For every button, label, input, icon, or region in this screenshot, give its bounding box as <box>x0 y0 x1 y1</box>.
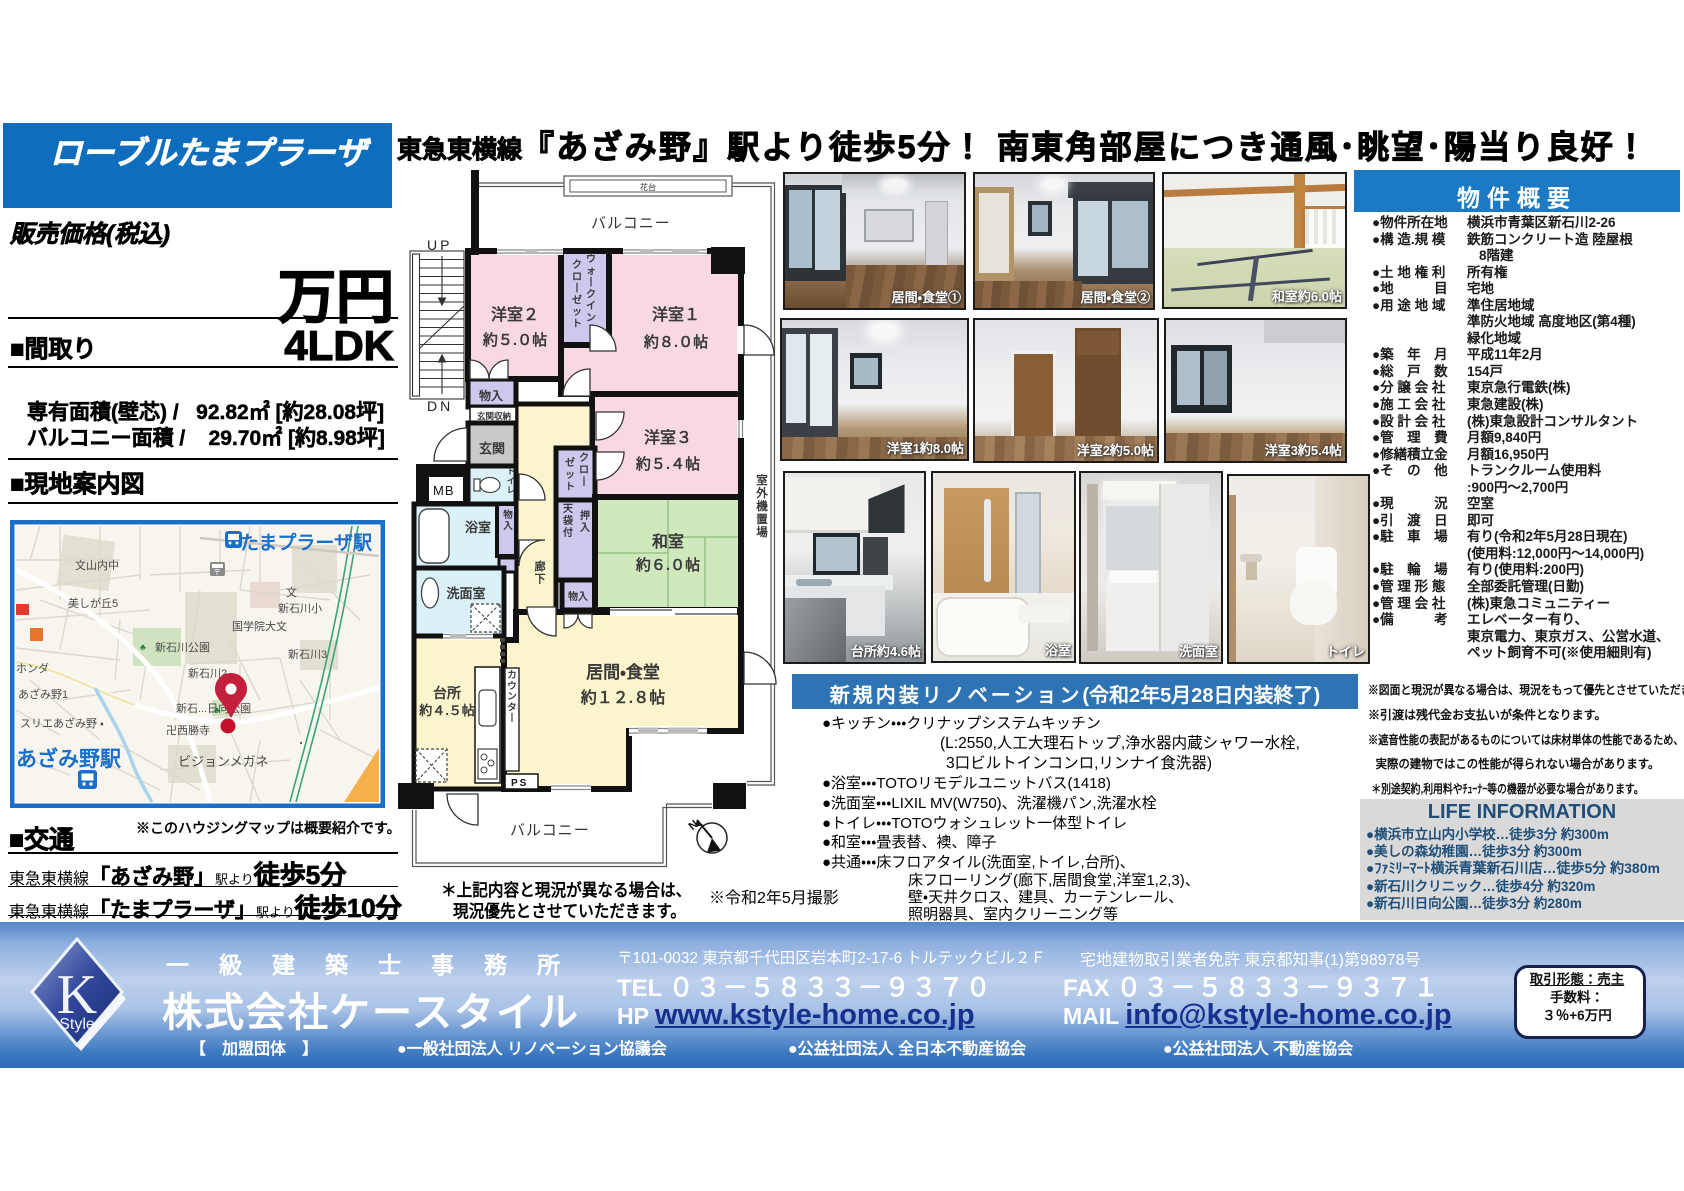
svg-text:ゼット: ゼット <box>565 456 575 493</box>
svg-text:美しが丘5: 美しが丘5 <box>68 596 118 610</box>
svg-text:居間・食堂: 居間・食堂 <box>586 662 660 682</box>
svg-text:洗面室: 洗面室 <box>446 586 485 601</box>
svg-text:♣: ♣ <box>214 705 220 715</box>
svg-text:〒: 〒 <box>213 568 221 577</box>
svg-text:花台: 花台 <box>640 182 656 192</box>
svg-text:物入: 物入 <box>479 388 504 403</box>
svg-text:約５.０帖: 約５.０帖 <box>482 331 547 349</box>
svg-text:室外機置場: 室外機置場 <box>755 473 768 539</box>
svg-text:クロ丨ゼット: クロ丨ゼット <box>572 259 582 330</box>
svg-text:ウォ丨クイン: ウォ丨クイン <box>586 253 596 324</box>
svg-text:約８.０帖: 約８.０帖 <box>643 333 708 351</box>
svg-text:トイレ: トイレ <box>507 466 516 495</box>
svg-text:文山内中: 文山内中 <box>75 558 119 572</box>
svg-text:廊下: 廊下 <box>535 559 546 586</box>
svg-text:約６.０帖: 約６.０帖 <box>635 556 700 574</box>
svg-text:たまプラーザ駅: たまプラーザ駅 <box>240 531 373 554</box>
svg-text:DN: DN <box>427 398 453 414</box>
svg-text:あざみ野駅: あざみ野駅 <box>16 747 122 771</box>
svg-text:物入: 物入 <box>568 590 589 603</box>
svg-text:♣: ♣ <box>140 642 146 652</box>
svg-text:天袋付: 天袋付 <box>562 503 574 539</box>
svg-text:洋室３: 洋室３ <box>644 428 692 447</box>
svg-text:PS: PS <box>511 778 528 789</box>
svg-text:約５.４帖: 約５.４帖 <box>635 455 700 473</box>
svg-text:カウンタ丨: カウンタ丨 <box>507 670 517 724</box>
svg-text:Style: Style <box>59 1016 95 1033</box>
svg-text:スリエあざみ野 ・: スリエあざみ野 ・ <box>20 716 104 730</box>
svg-text:ビジョンメガネ: ビジョンメガネ <box>178 754 269 769</box>
svg-text:洋室２: 洋室２ <box>491 305 539 324</box>
svg-text:新石川小: 新石川小 <box>278 602 322 615</box>
svg-text:MB: MB <box>433 483 455 498</box>
svg-text:玄関収納: 玄関収納 <box>477 411 512 421</box>
svg-text:浴室: 浴室 <box>465 520 491 535</box>
svg-text:約４.５帖: 約４.５帖 <box>418 703 475 718</box>
svg-text:あざみ野1: あざみ野1 <box>18 687 68 701</box>
svg-text:バルコニー: バルコニー <box>591 215 671 232</box>
svg-text:新石川公園: 新石川公園 <box>155 641 210 654</box>
svg-text:押入: 押入 <box>579 509 591 534</box>
svg-text:物入: 物入 <box>502 509 513 532</box>
svg-text:・: ・ <box>296 739 306 750</box>
svg-text:文: 文 <box>286 585 297 599</box>
svg-text:国学院大文: 国学院大文 <box>232 619 287 633</box>
svg-text:和室: 和室 <box>652 532 684 551</box>
svg-text:約１２.８帖: 約１２.８帖 <box>580 688 665 707</box>
svg-text:洋室１: 洋室１ <box>652 305 700 324</box>
svg-text:バルコニー: バルコニー <box>510 822 590 839</box>
svg-text:台所: 台所 <box>433 685 461 701</box>
svg-text:UP: UP <box>427 237 452 253</box>
svg-text:ホンダ: ホンダ <box>16 661 49 675</box>
svg-text:新石川3: 新石川3 <box>288 648 327 661</box>
svg-text:クロ丨: クロ丨 <box>579 452 589 488</box>
svg-text:卍西勝寺: 卍西勝寺 <box>166 723 210 737</box>
svg-text:玄関: 玄関 <box>479 441 505 456</box>
